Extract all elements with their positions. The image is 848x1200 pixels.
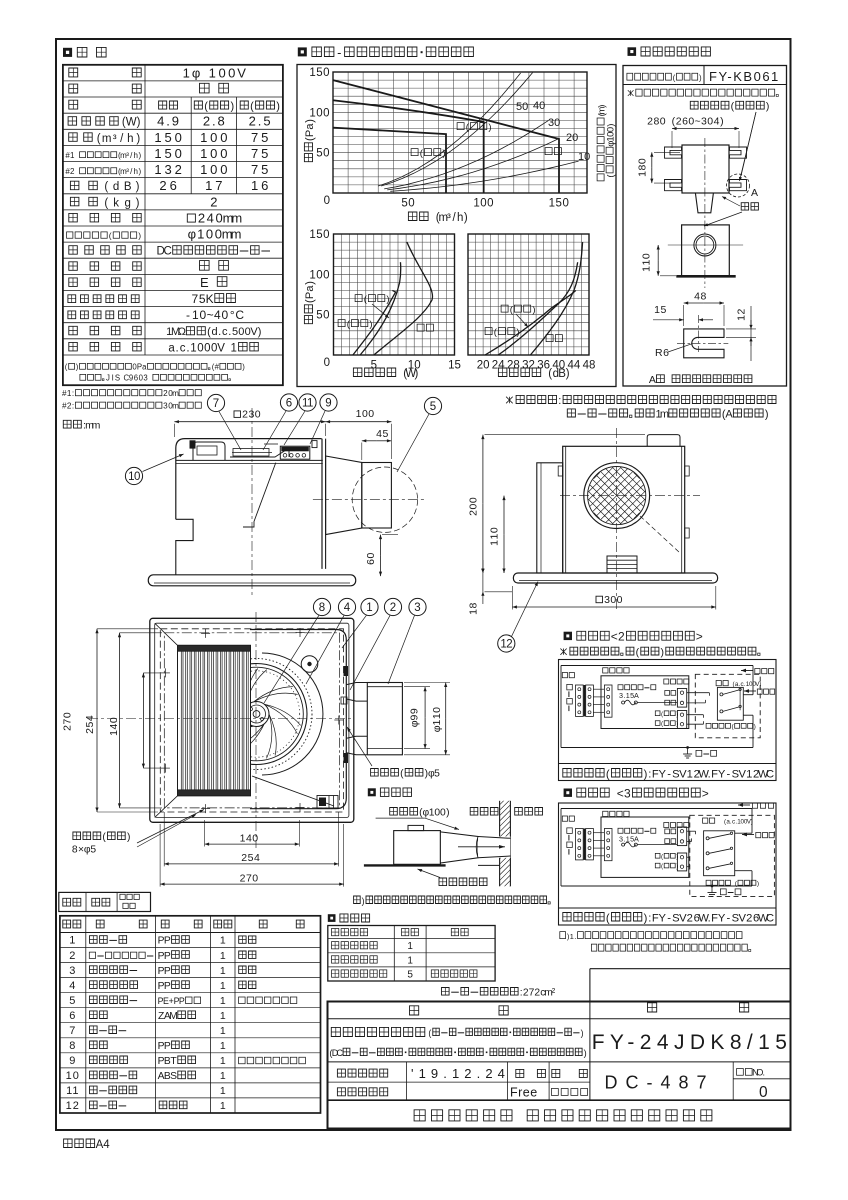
svg-text:K: K [206,292,214,306]
svg-text:0: 0 [431,707,443,713]
svg-text:5: 5 [164,130,171,145]
svg-text:.: . [212,114,216,129]
svg-text:φ: φ [192,65,200,80]
svg-text:1: 1 [220,965,226,977]
svg-text:8: 8 [468,603,480,609]
svg-text:2: 2 [159,178,166,193]
svg-text:0: 0 [175,146,182,161]
svg-text:P: P [164,981,171,992]
svg-text:0: 0 [365,553,377,559]
svg-text:20: 20 [477,360,490,372]
svg-text:1: 1 [366,602,372,614]
svg-text:4: 4 [103,1139,110,1151]
svg-text:150: 150 [309,67,330,79]
svg-text:>: > [702,787,709,801]
svg-text:2: 2 [210,194,217,209]
svg-text:m: m [102,133,112,145]
svg-text:1: 1 [407,941,413,952]
svg-text:2: 2 [618,630,625,644]
svg-text:2: 2 [687,913,693,925]
svg-text:d: d [113,181,119,193]
svg-text:): ) [464,212,468,224]
svg-text:.: . [574,932,576,941]
svg-text:2: 2 [676,116,682,128]
svg-text:0: 0 [707,116,713,128]
svg-text:a: a [168,342,175,354]
svg-text:1: 1 [220,1025,226,1037]
svg-text:0: 0 [220,130,227,145]
svg-text:3: 3 [619,835,623,844]
svg-text:): ) [532,305,535,316]
svg-text:0: 0 [220,162,227,177]
svg-text:3: 3 [248,409,254,421]
svg-text:3: 3 [619,691,623,700]
svg-text:8: 8 [217,114,224,129]
svg-text:Ω: Ω [178,326,186,338]
svg-text:0: 0 [252,873,258,885]
svg-text:V: V [237,65,246,80]
svg-text:P: P [179,996,185,1006]
svg-text:): ) [242,363,245,372]
svg-text:): ) [76,363,79,372]
svg-text:m: m [172,402,179,411]
svg-text:0: 0 [255,409,261,421]
svg-text:6: 6 [286,398,292,410]
svg-text:1: 1 [637,171,649,177]
svg-text:1: 1 [200,146,207,161]
svg-text:DC-487: DC-487 [604,1073,714,1093]
svg-text:2: 2 [647,116,653,128]
svg-text:30: 30 [548,117,560,129]
svg-text:): ) [386,294,389,305]
svg-text:0: 0 [220,146,227,161]
svg-text:): ) [566,368,570,380]
svg-text:5: 5 [430,401,436,413]
svg-text:m: m [92,420,101,432]
svg-text:c: c [180,342,186,354]
svg-text:11: 11 [302,398,313,410]
svg-text:10: 10 [128,471,140,483]
svg-text:6: 6 [365,559,377,565]
svg-text:0: 0 [222,308,229,322]
svg-text::: : [648,769,651,781]
svg-text:12: 12 [66,1100,80,1112]
svg-text:): ) [414,368,418,380]
svg-text:<: < [617,787,624,801]
svg-text:4: 4 [84,715,96,721]
svg-text:0: 0 [468,504,480,510]
svg-text:9: 9 [409,715,421,721]
svg-text:1: 1 [230,342,236,354]
svg-text:0: 0 [199,308,206,322]
svg-text:0: 0 [610,594,616,606]
svg-text:0: 0 [175,130,182,145]
svg-text:7: 7 [191,292,198,306]
svg-text:): ) [369,319,372,330]
svg-text:~: ~ [695,116,701,128]
svg-text:1: 1 [431,713,443,719]
svg-text:5: 5 [407,970,413,981]
svg-text:-: - [727,769,731,781]
svg-text:.: . [228,326,231,338]
svg-text:): ) [644,769,648,781]
svg-text:J: J [106,374,110,383]
svg-text:): ) [720,116,724,128]
svg-text:0: 0 [238,326,244,338]
svg-text:0: 0 [204,342,210,354]
svg-text:0: 0 [637,158,649,164]
svg-text:A: A [725,409,733,421]
svg-text:9: 9 [409,708,421,714]
svg-text:): ) [516,327,519,338]
svg-text:2: 2 [69,950,76,962]
svg-text:150: 150 [549,198,570,210]
svg-text:): ) [136,181,140,193]
svg-text:8: 8 [700,291,706,303]
svg-text:FY-KB061: FY-KB061 [709,69,780,84]
svg-text:.: . [258,114,262,129]
svg-text:2: 2 [70,167,75,176]
svg-text:50: 50 [516,101,528,113]
svg-text:C: C [766,913,774,925]
svg-text:100: 100 [309,269,330,281]
svg-text:3: 3 [701,116,707,128]
svg-text:<: < [611,630,618,644]
svg-text:3: 3 [414,602,420,614]
svg-text:0: 0 [228,65,235,80]
svg-text:5: 5 [382,428,388,440]
svg-text:6: 6 [134,374,138,383]
svg-text:0: 0 [210,162,217,177]
svg-text:³: ³ [126,167,129,176]
svg-text:1: 1 [183,65,190,80]
svg-text:4: 4 [714,116,720,128]
svg-text:): ) [676,711,678,718]
svg-text:): ) [138,167,141,176]
svg-text:.: . [166,114,170,129]
svg-text:.: . [218,326,221,338]
svg-text:9: 9 [172,114,179,129]
svg-text:4: 4 [69,980,76,992]
svg-text:-: - [727,913,731,925]
svg-text:5: 5 [90,845,96,856]
svg-text:m: m [660,409,669,421]
svg-text:8: 8 [319,602,325,614]
svg-text:P: P [164,966,171,977]
svg-text:(: ( [102,832,106,843]
svg-text:0: 0 [468,497,480,503]
svg-text:c: c [222,326,228,338]
svg-text:50: 50 [316,310,330,322]
svg-text:): ) [362,896,365,906]
svg-text:9: 9 [69,1055,76,1067]
svg-text:2: 2 [175,162,182,177]
svg-text:9: 9 [129,374,133,383]
svg-text:>: > [696,630,703,644]
svg-text:8: 8 [653,116,659,128]
svg-text:a: a [142,363,147,372]
svg-text:): ) [584,1048,587,1058]
svg-text:1: 1 [154,162,161,177]
svg-text::: : [648,913,651,925]
svg-text:): ) [304,119,316,123]
svg-text:): ) [766,101,770,113]
svg-text:2: 2 [241,852,247,864]
svg-text:P: P [164,951,171,962]
svg-text:³: ³ [447,212,451,224]
svg-text:): ) [676,863,678,870]
svg-text:P: P [304,130,316,137]
svg-text:(: ( [104,197,108,209]
svg-text:5: 5 [261,162,268,177]
svg-text:T: T [170,1056,177,1067]
svg-text:4: 4 [214,308,221,322]
svg-text:A: A [649,374,656,386]
svg-text:h: h [127,133,133,145]
svg-text:1: 1 [220,1100,226,1112]
svg-text:1: 1 [468,609,480,615]
svg-text:1: 1 [197,227,204,242]
svg-text:'19.12.24: '19.12.24 [411,1066,510,1081]
svg-text:0: 0 [108,717,120,723]
svg-text:4: 4 [108,724,120,730]
svg-text:6: 6 [170,178,177,193]
svg-text:4: 4 [344,602,351,614]
svg-text:3: 3 [143,374,147,383]
svg-text:7: 7 [215,178,222,193]
svg-text:(: ( [606,769,610,781]
svg-text::: : [72,389,74,398]
svg-text:0: 0 [210,130,217,145]
svg-text:1: 1 [154,146,161,161]
svg-text:0: 0 [368,408,374,420]
svg-text:.: . [186,342,189,354]
svg-text:7: 7 [251,146,258,161]
svg-text:0: 0 [210,146,217,161]
svg-text:0: 0 [489,527,501,533]
svg-text:-: - [667,913,671,925]
svg-text:): ) [765,409,769,421]
svg-text:S: S [170,1071,177,1082]
svg-text:P: P [304,292,316,299]
svg-text:): ) [676,721,678,728]
svg-text:20: 20 [566,132,578,144]
svg-text:): ) [138,231,141,241]
svg-text:7: 7 [251,162,258,177]
svg-text:.: . [175,342,178,354]
svg-text:1: 1 [431,720,443,726]
svg-text:1: 1 [240,833,246,845]
svg-text:.: . [762,1068,765,1078]
svg-text:4: 4 [376,428,382,440]
svg-text:0: 0 [440,808,446,819]
svg-text:(: ( [428,1028,431,1038]
svg-text:5: 5 [248,852,254,864]
svg-text:12: 12 [500,639,512,651]
svg-text:0: 0 [218,65,225,80]
svg-text:C: C [164,246,172,258]
svg-text:): ) [304,281,316,285]
svg-text:): ) [754,724,756,731]
svg-text::: : [72,402,74,411]
svg-text:g: g [124,197,130,209]
svg-text:1: 1 [200,130,207,145]
svg-text:1: 1 [220,980,226,992]
svg-text:): ) [127,832,130,843]
svg-text:(: ( [204,101,208,113]
svg-text:100: 100 [309,107,330,119]
svg-text:1: 1 [220,1055,226,1067]
svg-text:4: 4 [694,291,700,303]
svg-text:7: 7 [251,130,258,145]
svg-text:C: C [766,769,774,781]
svg-text:-: - [186,308,190,322]
svg-text:m: m [231,210,242,225]
svg-text:6: 6 [69,1010,76,1022]
svg-text:0: 0 [759,1084,768,1101]
svg-text:5: 5 [69,995,76,1007]
svg-text:8: 8 [637,165,649,171]
svg-text:): ) [136,197,140,209]
svg-text:3: 3 [624,787,631,801]
svg-text:32: 32 [522,360,535,372]
svg-text:Y: Y [658,769,666,781]
svg-text:2: 2 [746,913,752,925]
svg-text:0: 0 [660,116,666,128]
svg-text:(: ( [109,231,112,241]
svg-text:9: 9 [325,398,331,410]
svg-text:P: P [164,936,171,947]
svg-text:C: C [336,1048,343,1058]
svg-text:2: 2 [736,309,748,315]
svg-text:): ) [661,646,665,658]
svg-text:2: 2 [84,728,96,734]
svg-text:1: 1 [220,1070,226,1082]
svg-text:(: ( [104,181,108,193]
svg-text:°: ° [230,308,235,322]
svg-text:): ) [138,151,141,160]
svg-text:(: ( [250,101,254,113]
svg-text:10: 10 [66,1070,80,1082]
svg-text:50: 50 [401,198,415,210]
svg-text:2: 2 [203,114,210,129]
svg-text:W: W [126,117,137,129]
svg-text:3: 3 [69,965,76,977]
svg-text:5: 5 [232,326,238,338]
svg-text:6: 6 [682,116,688,128]
svg-text:1: 1 [251,178,258,193]
svg-text:(: ( [65,363,68,372]
svg-text:1: 1 [192,308,199,322]
svg-text:I: I [112,374,114,383]
svg-text:³: ³ [126,151,129,160]
svg-text:1: 1 [220,1010,226,1022]
svg-text:2: 2 [62,725,74,731]
svg-text:1: 1 [407,955,413,966]
svg-text:1: 1 [687,769,693,781]
svg-text:m: m [172,389,179,398]
svg-text:2: 2 [390,602,396,614]
svg-text:): ) [137,117,141,129]
svg-text:7: 7 [62,719,74,725]
svg-text:40: 40 [533,100,545,112]
svg-text:1: 1 [489,540,501,546]
svg-text:3: 3 [604,594,610,606]
svg-text:10: 10 [578,151,590,163]
svg-text:φ: φ [188,227,196,242]
svg-text:): ) [757,880,759,887]
svg-text:(: ( [731,101,735,113]
svg-text:1: 1 [641,260,653,266]
svg-text:1: 1 [209,65,216,80]
svg-text:A: A [634,835,639,844]
svg-text:5: 5 [263,114,270,129]
svg-text:²: ² [552,988,556,999]
svg-text:h: h [133,167,137,176]
svg-text:11: 11 [66,1085,79,1097]
svg-text:): ) [446,808,449,819]
svg-text:d: d [211,326,217,338]
svg-text:15: 15 [448,360,461,372]
svg-text:48: 48 [583,360,596,372]
svg-text:): ) [644,913,648,925]
svg-text:7: 7 [246,873,252,885]
svg-text:): ) [488,122,491,133]
svg-text:#: # [215,363,220,372]
svg-text:1: 1 [70,151,75,160]
svg-text:2: 2 [249,114,256,129]
svg-text:5: 5 [261,146,268,161]
svg-text:A: A [751,187,758,199]
svg-text:5: 5 [261,130,268,145]
svg-text:): ) [759,681,761,688]
svg-text:150: 150 [309,229,330,241]
svg-text:1: 1 [220,935,226,947]
svg-text:1: 1 [205,178,212,193]
svg-text:V: V [217,342,225,354]
svg-text:1: 1 [489,534,501,540]
svg-text:): ) [597,105,608,108]
svg-text:(: ( [606,913,610,925]
svg-text:0: 0 [206,227,213,242]
svg-text:): ) [136,133,140,145]
svg-text:4: 4 [246,833,252,845]
svg-text:(: ( [97,133,101,145]
svg-text:Y: Y [718,913,726,925]
svg-text:1: 1 [220,1040,226,1052]
svg-text:): ) [581,1028,584,1038]
svg-text:6: 6 [261,178,268,193]
svg-text:(: ( [636,646,640,658]
svg-text:): ) [276,101,280,113]
svg-text:~: ~ [207,308,214,322]
svg-text:P: P [164,1041,171,1052]
svg-text:100: 100 [473,198,494,210]
svg-text:): ) [676,853,678,860]
svg-text:A: A [634,691,639,700]
svg-text:1: 1 [220,995,226,1007]
svg-text:-: - [337,45,341,60]
svg-text:0: 0 [617,594,623,606]
svg-text:B: B [124,181,132,193]
svg-text:8: 8 [69,1040,76,1052]
svg-text:h: h [457,212,463,224]
svg-text:1: 1 [641,266,653,272]
svg-text:S: S [115,374,120,383]
svg-text:1: 1 [220,1085,226,1097]
svg-text:1: 1 [746,769,752,781]
svg-text:0: 0 [688,116,694,128]
